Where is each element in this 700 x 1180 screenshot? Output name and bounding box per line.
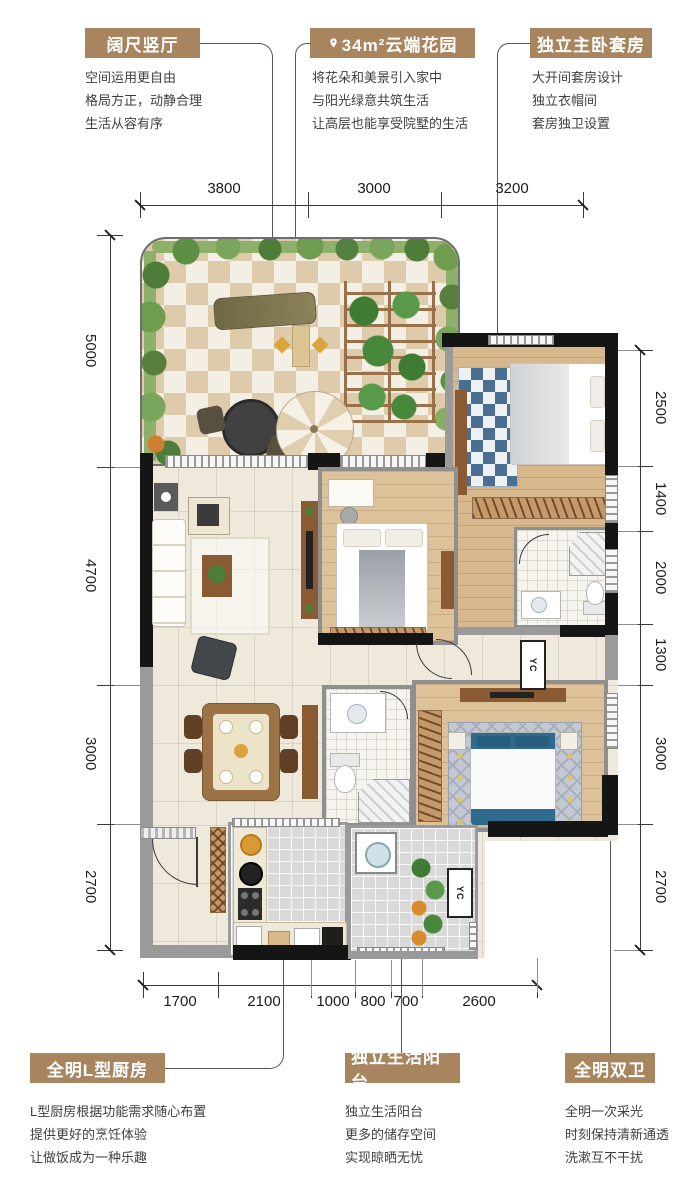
nightstand <box>560 732 578 750</box>
room-kitchen <box>228 822 348 958</box>
desc-line: 实现晾晒无忧 <box>345 1146 436 1169</box>
dim-label-right-4: 3000 <box>652 723 669 785</box>
wall-segment <box>602 775 618 835</box>
dim-label-bottom-1: 2100 <box>232 993 296 1010</box>
master-wardrobe <box>472 497 612 519</box>
dining-table <box>202 703 280 801</box>
centerpiece <box>234 744 248 758</box>
sofa <box>152 519 186 627</box>
master-bed <box>510 363 614 465</box>
room-bedroom-3 <box>412 680 608 832</box>
plant-icon <box>208 565 226 583</box>
living-shelf <box>188 497 230 535</box>
wall-segment <box>605 523 618 549</box>
dim-line-left <box>110 235 111 950</box>
duct-label: YC <box>455 886 465 901</box>
shelf-panel <box>197 504 219 526</box>
dining-chair <box>184 749 202 773</box>
dim-label-bottom-4: 700 <box>374 993 438 1010</box>
duct-shaft-balcony: YC <box>447 868 473 918</box>
window-bedroom3-right <box>606 693 618 749</box>
dining-chair <box>280 715 298 739</box>
window-master <box>488 335 554 345</box>
bedroom2-bed <box>336 523 428 631</box>
bedroom2-desk <box>328 479 374 507</box>
room-bedroom-2 <box>318 467 458 645</box>
window-balcony-right <box>469 922 477 950</box>
tag-master-suite: 独立主卧套房 <box>530 28 652 58</box>
dim-label-left-2: 3000 <box>82 723 99 785</box>
pantry-cabinet <box>210 827 226 913</box>
plate-icon <box>249 770 263 784</box>
window-kitchen-top <box>232 818 340 827</box>
entry-cabinet <box>154 483 178 511</box>
pillow <box>343 529 381 547</box>
desc-line: 让高层也能享受院墅的生活 <box>312 112 468 135</box>
master-blanket <box>511 364 569 464</box>
bedroom3-wardrobe <box>418 710 442 822</box>
tv-icon <box>306 531 313 589</box>
desc-line: 套房独卫设置 <box>532 112 623 135</box>
dim-ext <box>311 956 312 996</box>
desc-master-suite: 大开间套房设计独立衣帽间套房独卫设置 <box>532 66 623 135</box>
cabinet-knob <box>161 492 171 502</box>
plant-icon <box>305 507 314 516</box>
kitchen-counter-left <box>233 827 267 924</box>
sink-basin <box>531 597 547 613</box>
dim-label-top-0: 3800 <box>184 180 264 197</box>
burner <box>252 892 259 899</box>
duct-shaft-corridor: YC <box>520 640 546 690</box>
washing-machine <box>355 832 397 874</box>
dim-ext <box>391 960 392 992</box>
desc-line: 全明一次采光 <box>565 1100 669 1123</box>
desc-life-balcony: 独立生活阳台更多的储存空间实现晾晒无忧 <box>345 1100 436 1169</box>
tv-icon <box>490 692 534 698</box>
burner <box>241 892 248 899</box>
parasol-hub <box>310 425 318 433</box>
dim-tick <box>441 192 442 218</box>
sink-basin <box>347 704 367 724</box>
plate-icon <box>219 720 233 734</box>
room-sky-garden <box>140 237 460 466</box>
wall-corridor-right <box>605 635 618 680</box>
bedroom3-tv-console <box>460 688 566 702</box>
bedroom3-bed <box>470 732 556 826</box>
dim-tick <box>308 192 309 218</box>
desc-kitchen: L型厨房根据功能需求随心布置提供更好的烹饪体验让做饭成为一种乐趣 <box>30 1100 206 1169</box>
duct-label: YC <box>528 658 538 673</box>
tag-life-balcony: 独立生活阳台 <box>345 1053 460 1083</box>
bath2-vanity <box>330 693 386 733</box>
tag-kitchen-label: 全明L型厨房 <box>47 1056 148 1081</box>
desc-line: 洗漱互不干扰 <box>565 1146 669 1169</box>
wall-balcony-bottom <box>348 951 478 959</box>
bath2-shower <box>358 779 410 823</box>
dim-label-right-1: 1400 <box>652 468 669 530</box>
desc-line: 更多的储存空间 <box>345 1123 436 1146</box>
burner <box>252 909 259 916</box>
desc-line: L型厨房根据功能需求随心布置 <box>30 1100 206 1123</box>
plate-icon <box>249 720 263 734</box>
floorplan: YC YC <box>140 235 618 960</box>
window-living-garden <box>165 455 308 468</box>
dim-label-top-2: 3200 <box>472 180 552 197</box>
wall-bottom-left <box>140 945 232 958</box>
desc-line: 提供更好的烹饪体验 <box>30 1123 206 1146</box>
room-master-bedroom <box>452 345 618 630</box>
desc-line: 独立衣帽间 <box>532 89 623 112</box>
window-master-right <box>605 475 618 523</box>
dim-label-bottom-0: 1700 <box>148 993 212 1010</box>
floorplan-page: 阔尺竖厅 空间运用更自由格局方正，动静合理生活从容有序 34m²云端花园 将花朵… <box>0 0 700 1180</box>
desc-line: 将花朵和美景引入家中 <box>312 66 468 89</box>
toilet-icon <box>334 765 356 793</box>
desc-line: 格局方正，动静合理 <box>85 89 202 112</box>
dim-line-right <box>640 350 641 950</box>
desc-line: 独立生活阳台 <box>345 1100 436 1123</box>
dim-label-bottom-5: 2600 <box>447 993 511 1010</box>
pillow <box>515 736 549 747</box>
burner <box>241 909 248 916</box>
dim-label-right-5: 2700 <box>652 856 669 918</box>
bath-door-arc <box>519 534 549 564</box>
wall-kitchen-bottom <box>233 945 351 960</box>
wall-left-gray <box>140 667 153 827</box>
pillow <box>590 376 605 408</box>
dim-ext <box>422 956 423 996</box>
bedroom2-dresser <box>441 551 454 609</box>
desc-line: 空间运用更自由 <box>85 66 202 89</box>
living-tv-console <box>301 501 318 619</box>
dim-ext <box>114 685 140 686</box>
entry-threshold <box>140 827 196 839</box>
dim-label-top-1: 3000 <box>334 180 414 197</box>
tag-sky-garden: 34m²云端花园 <box>310 28 475 58</box>
garden-stool <box>196 405 227 436</box>
dining-chair <box>280 749 298 773</box>
dim-ext <box>537 958 538 992</box>
toilet-icon <box>586 581 604 605</box>
desc-line: 与阳光绿意共筑生活 <box>312 89 468 112</box>
dim-label-right-3: 1300 <box>652 624 669 686</box>
coffee-plant-box <box>202 555 232 597</box>
tag-sky-garden-label: 34m²云端花园 <box>342 31 458 56</box>
pillow <box>385 529 423 547</box>
dim-label-left-3: 2700 <box>82 856 99 918</box>
room-master-bathroom <box>514 527 616 628</box>
desc-line: 让做饭成为一种乐趣 <box>30 1146 206 1169</box>
tag-living-hall: 阔尺竖厅 <box>85 28 200 58</box>
desc-sky-garden: 将花朵和美景引入家中与阳光绿意共筑生活让高层也能享受院墅的生活 <box>312 66 468 135</box>
desc-line: 时刻保持清新通透 <box>565 1123 669 1146</box>
wall-segment <box>605 593 618 635</box>
desc-line: 生活从容有序 <box>85 112 202 135</box>
dim-ext <box>355 960 356 992</box>
bedroom2-blanket <box>359 550 405 628</box>
desc-living-hall: 空间运用更自由格局方正，动静合理生活从容有序 <box>85 66 202 135</box>
entry-door-leaf <box>196 837 198 887</box>
wok-icon <box>239 862 263 886</box>
dim-label-right-0: 2500 <box>652 377 669 439</box>
fruit-bowl <box>240 834 262 856</box>
room-bathroom-2 <box>322 685 414 827</box>
dim-ext <box>114 467 140 468</box>
dim-label-right-2: 2000 <box>652 547 669 609</box>
garden-side-table <box>292 325 310 367</box>
dim-label-left-0: 5000 <box>82 320 99 382</box>
dining-chair <box>184 715 202 739</box>
dim-tick <box>218 972 219 998</box>
dim-ext <box>114 824 140 825</box>
tag-master-suite-label: 独立主卧套房 <box>537 31 645 56</box>
tag-living-hall-label: 阔尺竖厅 <box>107 31 179 56</box>
tag-double-bath-label: 全明双卫 <box>574 1056 646 1081</box>
desc-double-bath: 全明一次采光时刻保持清新通透洗漱互不干扰 <box>565 1100 669 1169</box>
master-rug <box>458 367 518 487</box>
wall-bedroom3-bottom <box>488 821 608 837</box>
tag-double-bath: 全明双卫 <box>565 1053 655 1083</box>
washer-drum <box>365 842 391 868</box>
pillow <box>477 736 511 747</box>
nightstand <box>448 732 466 750</box>
plant-icon <box>305 604 314 613</box>
window-bath-right <box>605 549 618 593</box>
bath2-door-arc <box>380 691 408 719</box>
wall-left-gray-lower <box>140 839 153 945</box>
room-life-balcony: YC <box>348 825 478 955</box>
dim-line-top <box>140 205 583 206</box>
pillow <box>590 420 605 452</box>
wall-right-black <box>605 333 618 475</box>
dim-label-left-1: 4700 <box>82 545 99 607</box>
location-pin-icon <box>328 36 339 50</box>
tag-kitchen: 全明L型厨房 <box>30 1053 165 1083</box>
plate-icon <box>219 770 233 784</box>
sideboard <box>302 705 318 799</box>
desc-line: 大开间套房设计 <box>532 66 623 89</box>
garden-trellis <box>344 281 436 423</box>
trellis-vines <box>344 281 436 423</box>
dim-line-bottom <box>143 985 537 986</box>
cooktop <box>238 888 262 920</box>
balcony-plants <box>409 856 447 948</box>
